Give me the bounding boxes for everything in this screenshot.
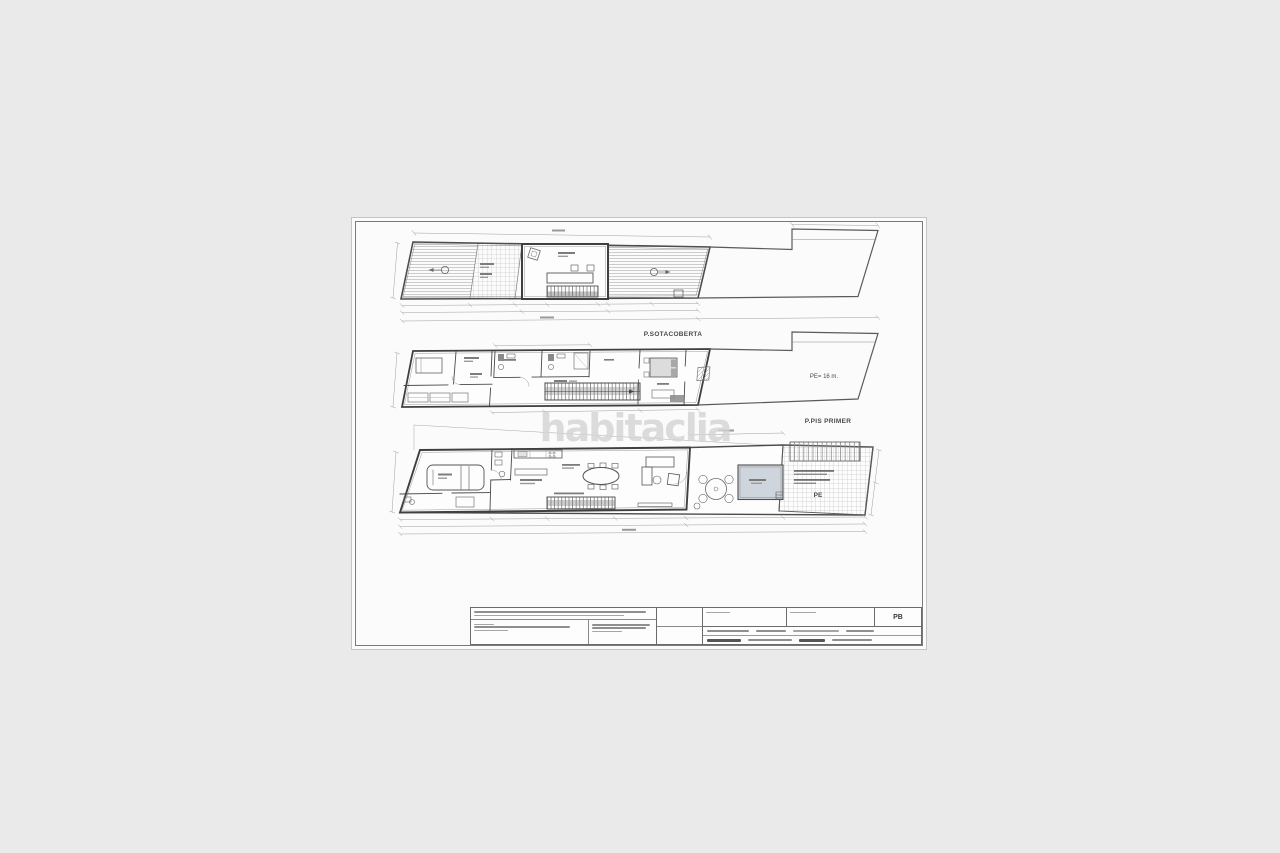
title-block-row-2: [703, 635, 921, 644]
title-block-row-1: [703, 627, 921, 635]
title-block-disclaimer: [471, 608, 656, 620]
plan-roof: P.SOTACOBERTA: [391, 222, 881, 338]
height-note: PE= 16 m.: [810, 374, 839, 380]
parcel-outline-first: [698, 332, 878, 405]
scanned-plan-sheet: P.SOTACOBERTA: [352, 218, 926, 649]
plan-first-label: P.PIS PRIMER: [805, 418, 851, 425]
pool: [738, 465, 783, 500]
garden-zone-note: PE: [814, 492, 823, 499]
sheet-code: PB: [875, 608, 921, 626]
deck-strip: [790, 442, 860, 461]
title-block-left: [471, 608, 657, 644]
title-block: PB: [470, 607, 922, 645]
balcony: [697, 367, 710, 381]
title-block-scale-cell: [657, 608, 703, 644]
stair-first: [545, 383, 640, 400]
plan-ground: PE: [390, 425, 882, 536]
title-block-date-cell: [787, 608, 875, 626]
plan-roof-label: P.SOTACOBERTA: [644, 331, 702, 338]
plan-first: PE= 16 m. P.PIS PRIMER: [391, 332, 879, 425]
title-block-owner-cell: [471, 620, 589, 644]
title-block-right: PB: [703, 608, 921, 644]
screenshot-root: { "watermark": { "text": "habitaclia" },…: [0, 0, 1280, 853]
title-block-stamp-cell: [703, 608, 787, 626]
plan-drawing: P.SOTACOBERTA: [352, 218, 926, 649]
title-block-project-cell: [589, 620, 656, 644]
